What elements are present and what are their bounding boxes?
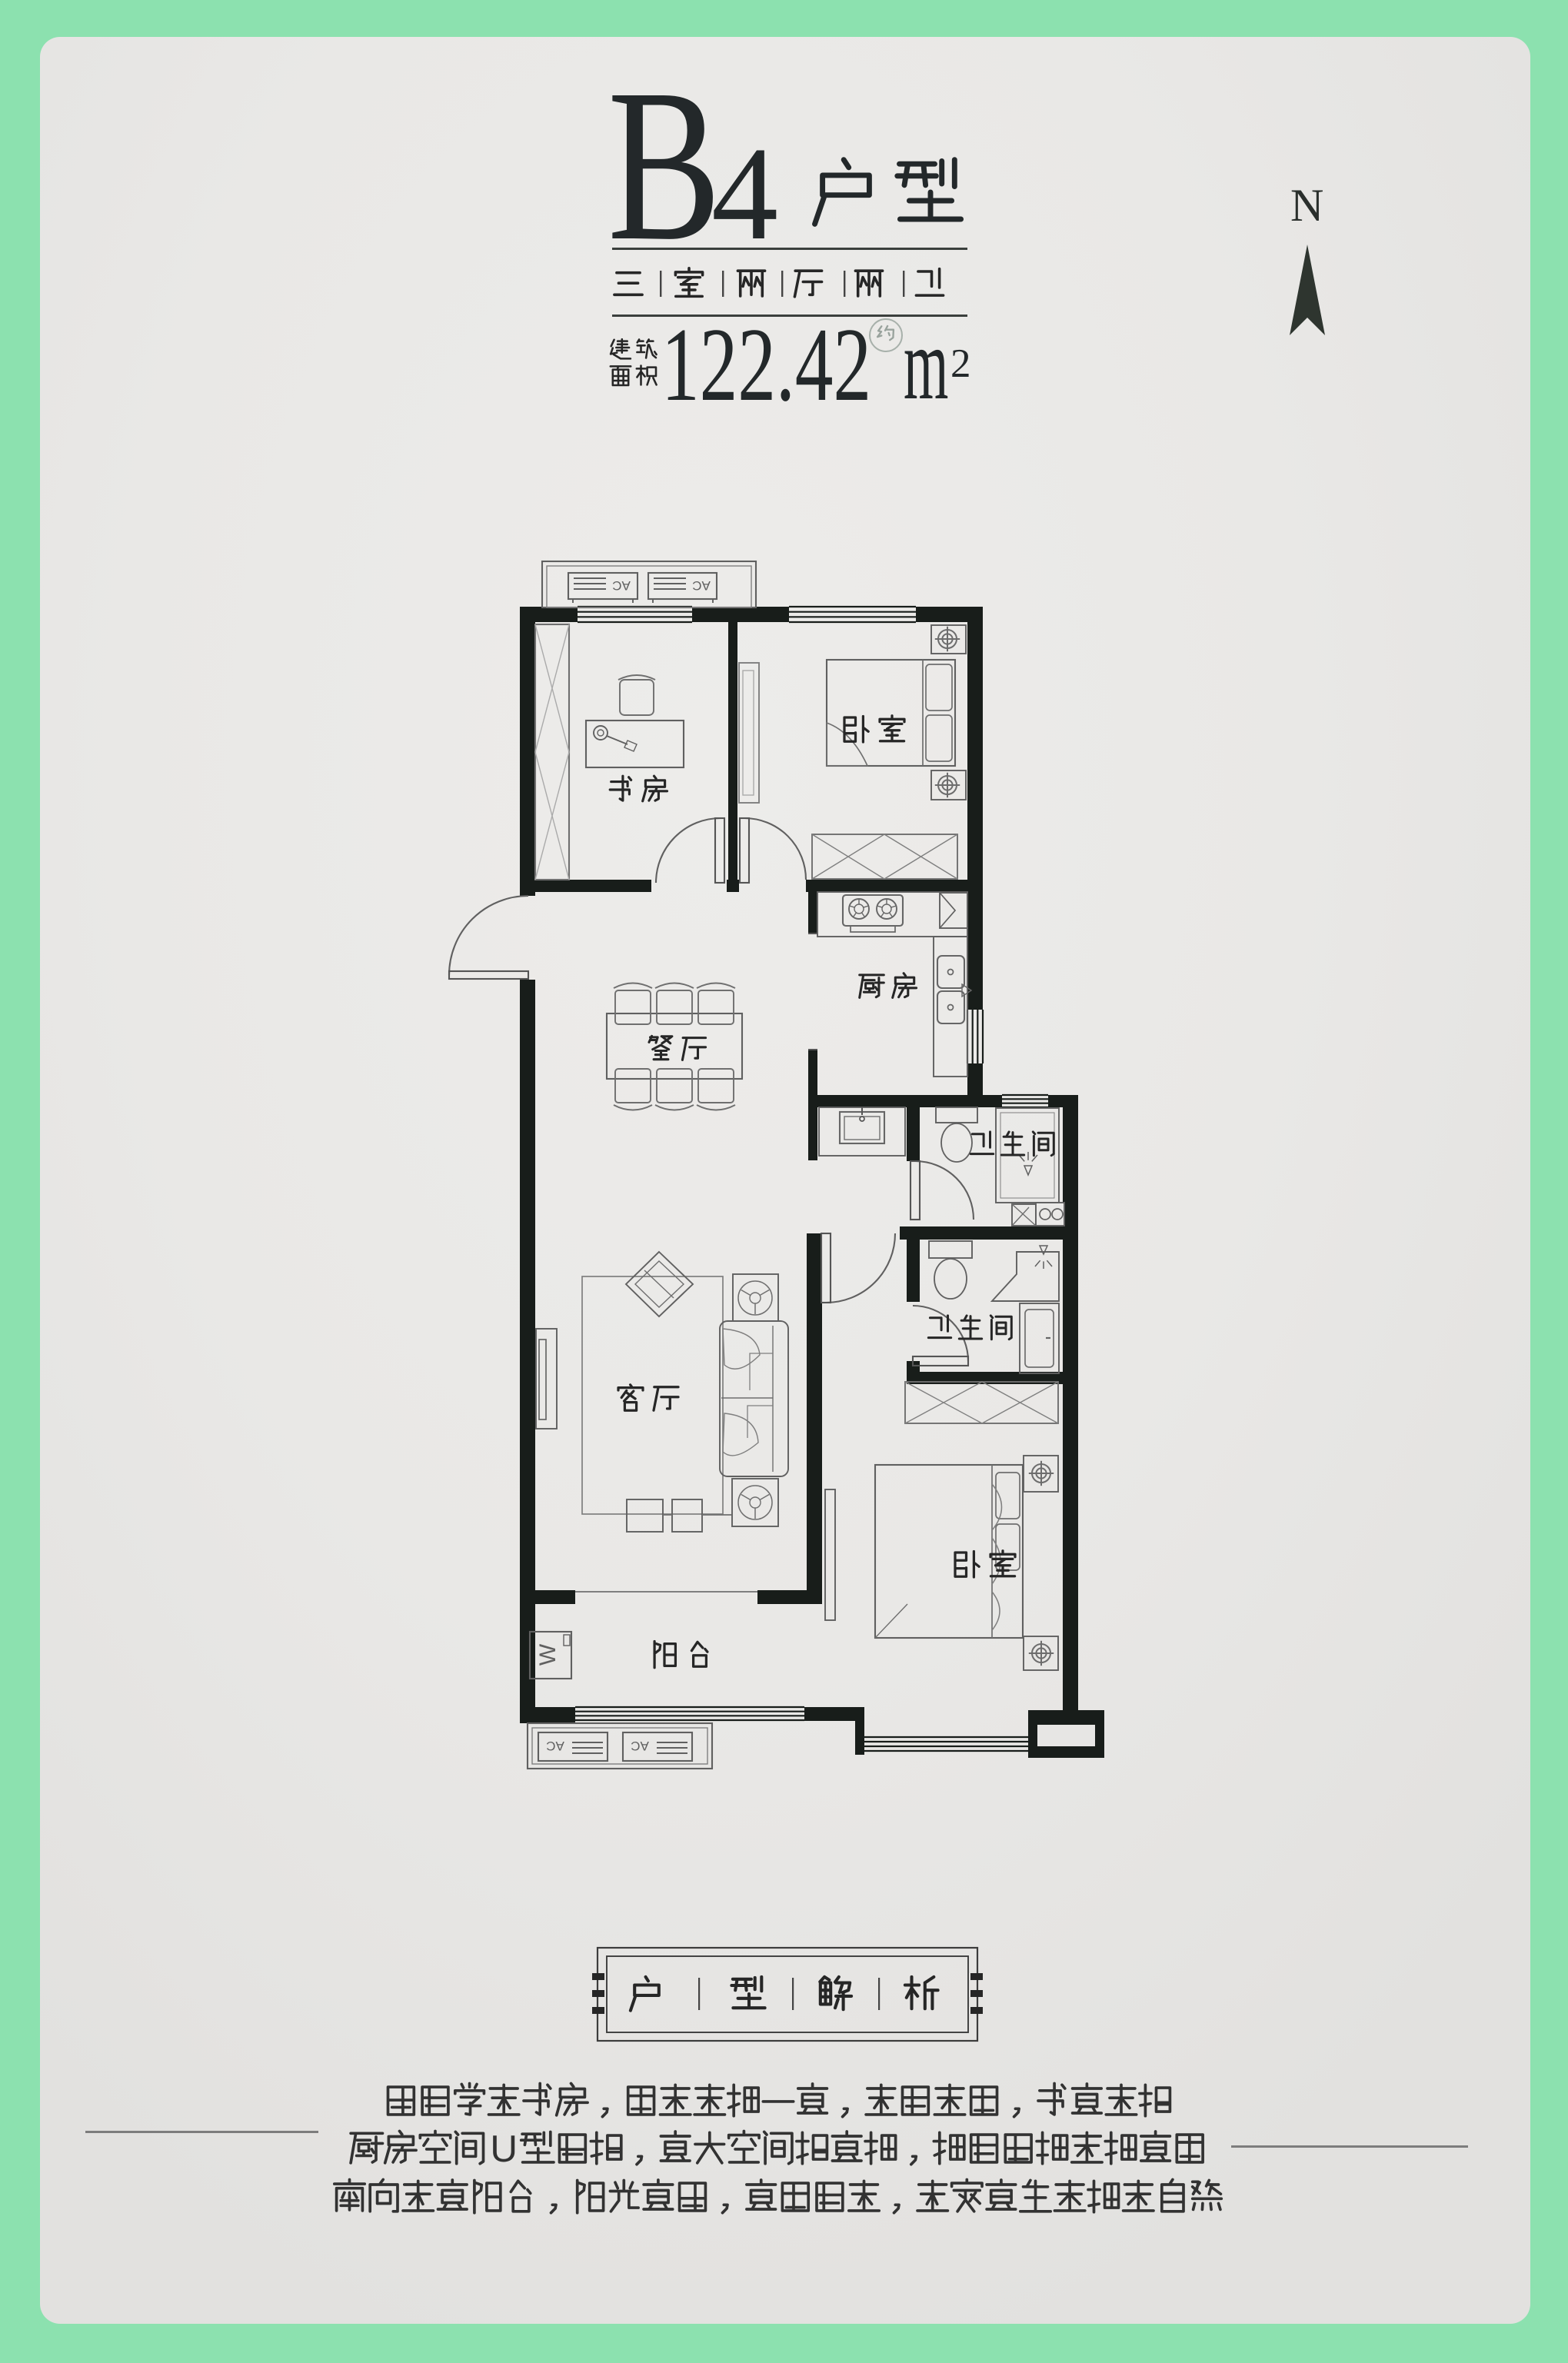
- svg-text:N: N: [1290, 180, 1323, 231]
- svg-text:B: B: [608, 45, 721, 286]
- svg-text:m: m: [904, 308, 948, 421]
- svg-text:2: 2: [950, 341, 971, 386]
- svg-text:AC: AC: [612, 578, 631, 593]
- svg-text:U: U: [490, 2128, 518, 2170]
- svg-text:W: W: [535, 1643, 561, 1666]
- svg-text:122.42: 122.42: [661, 305, 871, 422]
- svg-text:AC: AC: [631, 1739, 649, 1753]
- svg-text:AC: AC: [546, 1739, 564, 1753]
- svg-text:AC: AC: [692, 578, 711, 593]
- svg-text:4: 4: [711, 119, 778, 268]
